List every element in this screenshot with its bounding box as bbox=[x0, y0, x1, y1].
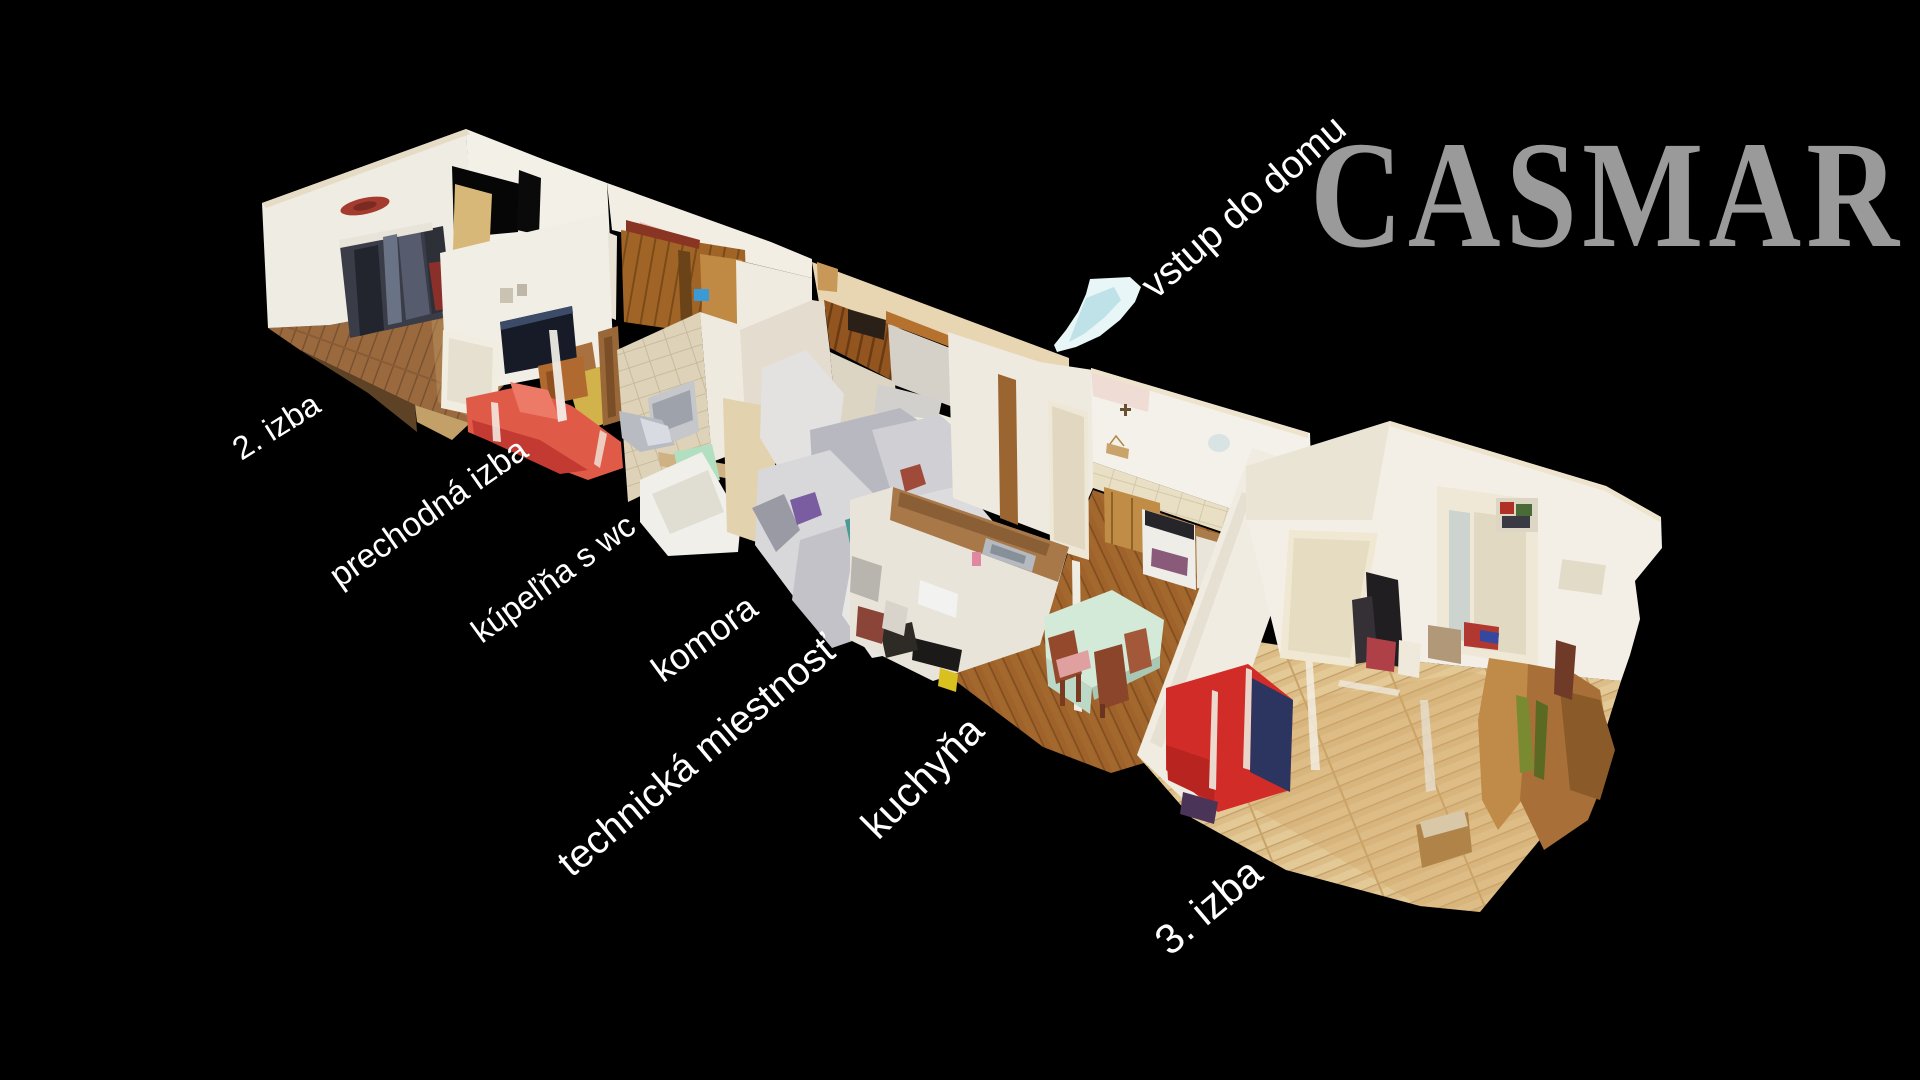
svg-text:CASMAR: CASMAR bbox=[1310, 111, 1904, 280]
